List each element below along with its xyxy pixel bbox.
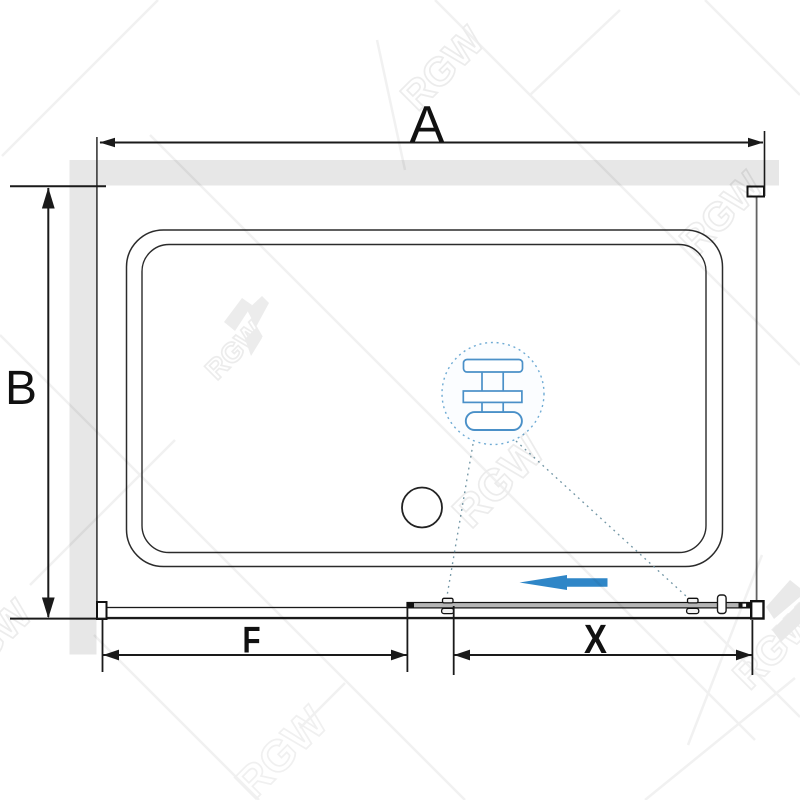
svg-text:F: F [242,620,260,661]
svg-text:X: X [584,617,607,662]
svg-text:B: B [5,362,37,415]
